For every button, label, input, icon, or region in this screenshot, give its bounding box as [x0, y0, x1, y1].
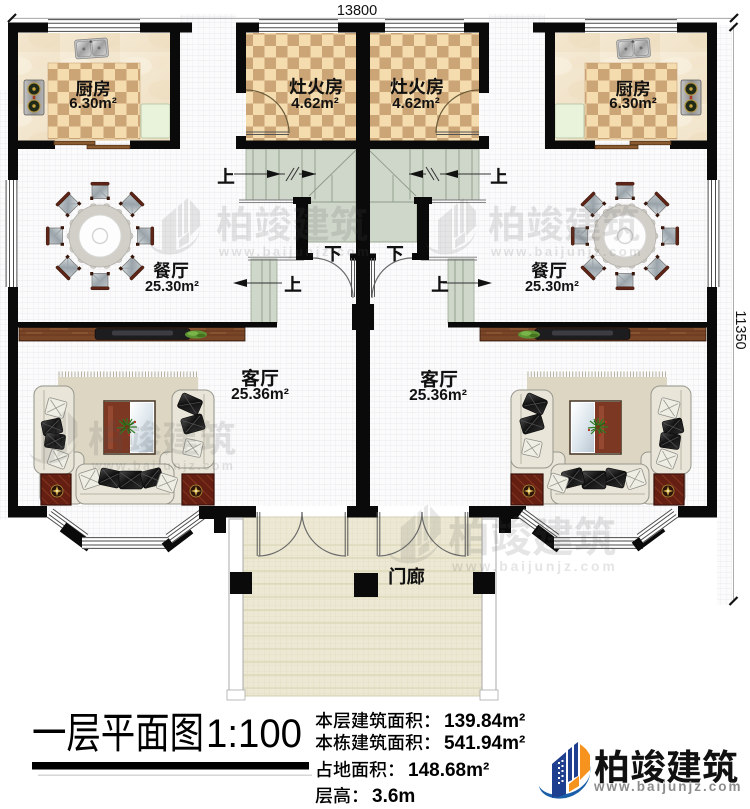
svg-text:4.62m²: 4.62m² [392, 95, 440, 112]
svg-text:6.30m²: 6.30m² [609, 95, 657, 112]
svg-text:1:100: 1:100 [206, 712, 302, 756]
svg-text:541.94m²: 541.94m² [444, 733, 525, 754]
svg-text:25.36m²: 25.36m² [409, 387, 467, 404]
svg-text:www.baijunjz.com: www.baijunjz.com [490, 244, 643, 259]
svg-text:www.baijunjz.com: www.baijunjz.com [451, 558, 618, 574]
svg-text:www.baijunjz.com: www.baijunjz.com [218, 244, 371, 259]
svg-text:148.68m²: 148.68m² [408, 760, 489, 781]
svg-text:13800: 13800 [337, 3, 377, 19]
svg-text:25.30m²: 25.30m² [145, 279, 199, 295]
svg-text:6.30m²: 6.30m² [69, 95, 117, 112]
svg-text:www.baijunjz.com: www.baijunjz.com [91, 459, 235, 473]
svg-text:11350: 11350 [732, 310, 748, 349]
svg-text:3.6m: 3.6m [372, 786, 415, 807]
svg-text:www.baijunjz.com: www.baijunjz.com [593, 779, 743, 794]
svg-text:25.30m²: 25.30m² [525, 279, 579, 295]
svg-text:139.84m²: 139.84m² [444, 711, 525, 732]
svg-text:25.36m²: 25.36m² [231, 386, 289, 403]
svg-text:4.62m²: 4.62m² [291, 95, 339, 112]
